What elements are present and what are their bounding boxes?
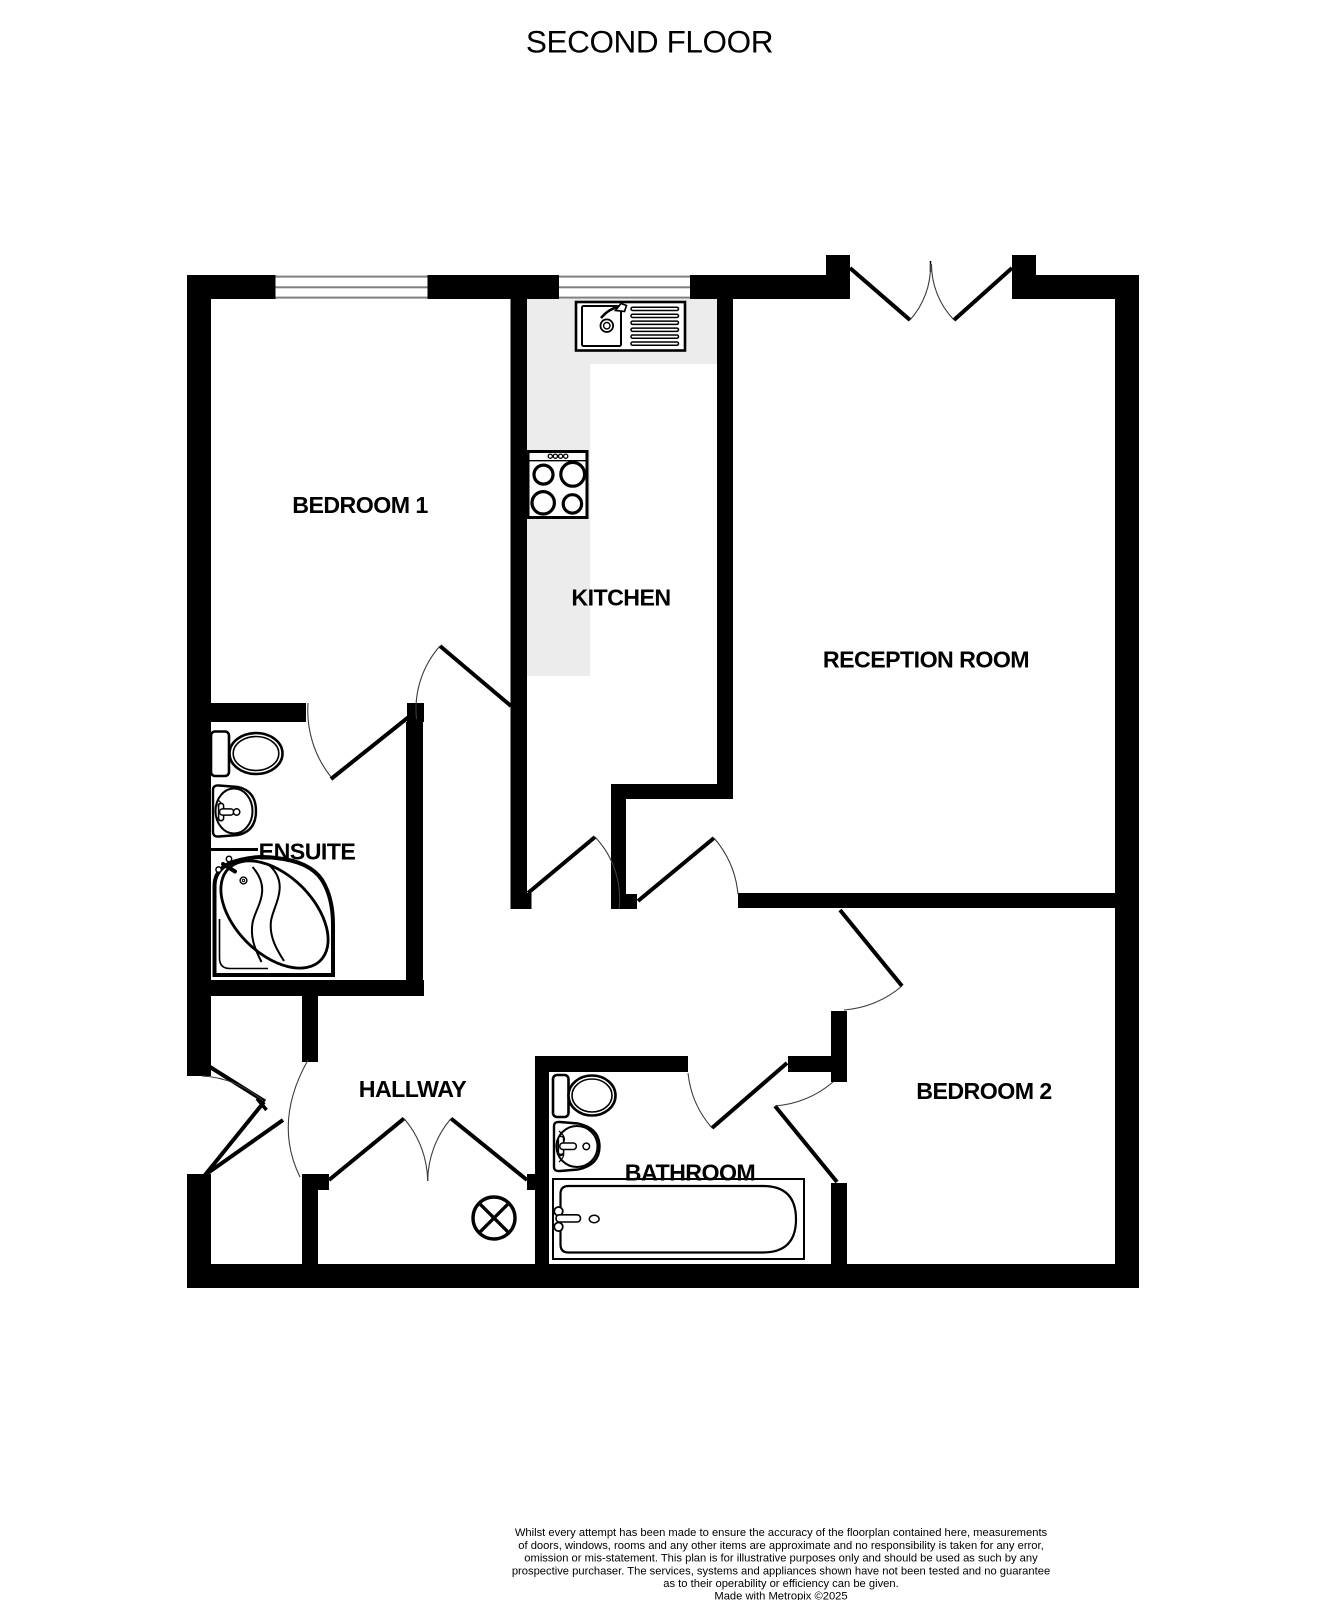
svg-text:ENSUITE: ENSUITE <box>259 839 356 865</box>
svg-text:RECEPTION ROOM: RECEPTION ROOM <box>823 647 1029 673</box>
svg-text:BEDROOM 2: BEDROOM 2 <box>916 1078 1051 1104</box>
svg-text:as to their operability or eff: as to their operability or efficiency ca… <box>663 1578 898 1590</box>
svg-text:KITCHEN: KITCHEN <box>571 585 670 611</box>
svg-text:SECOND FLOOR: SECOND FLOOR <box>526 24 773 60</box>
svg-text:HALLWAY: HALLWAY <box>359 1076 467 1102</box>
svg-text:BEDROOM 1: BEDROOM 1 <box>292 492 428 518</box>
svg-text:Whilst every attempt has been: Whilst every attempt has been made to en… <box>515 1527 1048 1539</box>
svg-text:prospective purchaser. The ser: prospective purchaser. The services, sys… <box>512 1565 1050 1577</box>
svg-text:of doors, windows, rooms and a: of doors, windows, rooms and any other i… <box>518 1540 1043 1552</box>
svg-text:Made with Metropix ©2025: Made with Metropix ©2025 <box>714 1591 847 1600</box>
svg-text:BATHROOM: BATHROOM <box>625 1160 755 1186</box>
svg-text:omission or mis-statement. Thi: omission or mis-statement. This plan is … <box>524 1553 1038 1565</box>
